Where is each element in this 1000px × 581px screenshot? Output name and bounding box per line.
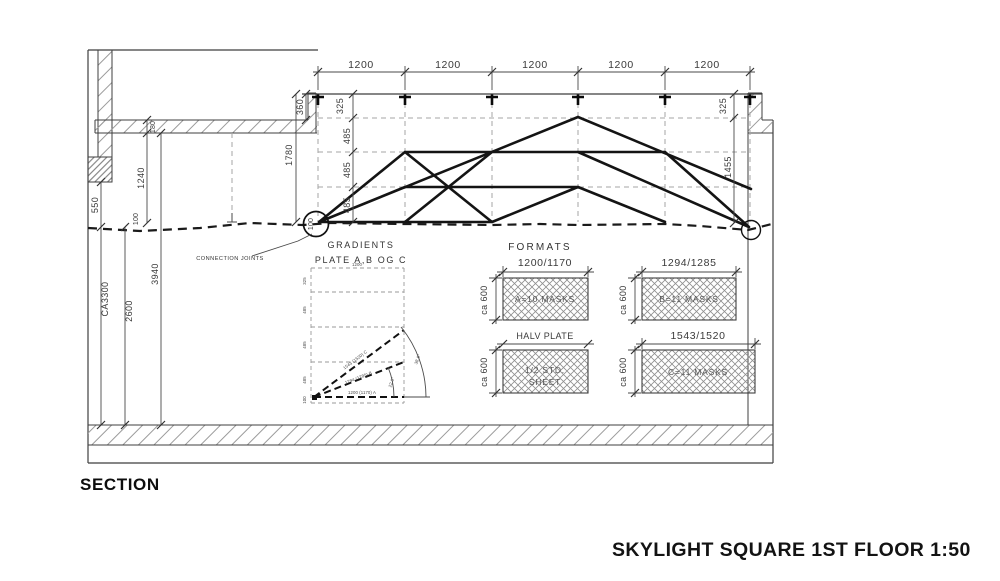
panel-half-label-line1: 1/2 STD. bbox=[525, 365, 565, 375]
format-panel-half: HALV PLATE ca 600 1/2 STD. SHEET bbox=[479, 331, 594, 397]
folded-plate-lines bbox=[319, 117, 751, 227]
dim-1455: 1455 bbox=[723, 156, 733, 178]
drawing-title: SKYLIGHT SQUARE 1ST FLOOR 1:50 bbox=[612, 539, 971, 561]
ceiling-slab-left bbox=[95, 120, 317, 133]
gradients-detail: GRADIENTS PLATE A,B OG C 1200 325 485 48… bbox=[302, 240, 430, 404]
gradient-line-a-label: 1200 (1170) A bbox=[348, 390, 376, 395]
bay-dim-4: 1200 bbox=[608, 59, 634, 71]
bay-dim-5: 1200 bbox=[694, 59, 720, 71]
dim-180: 180 bbox=[150, 121, 157, 133]
gradient-origin bbox=[312, 395, 317, 400]
dim-ca3300: CA3300 bbox=[100, 282, 110, 317]
dim-550: 550 bbox=[90, 197, 100, 213]
level-dim-485c: 485 bbox=[342, 197, 352, 213]
drawing-sheet: 100 CONNECTION JOINTS 1200 1200 1200 120… bbox=[0, 0, 1000, 581]
gradient-line-b-label: 1294 (1285) B bbox=[344, 370, 372, 385]
gradients-title: GRADIENTS bbox=[328, 240, 395, 250]
grid-anchor-mark bbox=[227, 213, 237, 222]
level-dim-485b: 485 bbox=[342, 162, 352, 178]
formats: FORMATS 1200/1170 ca 600 A=10 MASKS 1294… bbox=[479, 242, 761, 397]
joint-leader-line bbox=[252, 234, 312, 256]
panel-a-label: A=10 MASKS bbox=[515, 294, 575, 304]
dims-level-chain-left: 325 485 485 485 1780 360 bbox=[284, 90, 357, 226]
node-offset-dim: 100 bbox=[308, 218, 315, 230]
panel-b-label: B=11 MASKS bbox=[659, 294, 719, 304]
panel-half-side-dim: ca 600 bbox=[479, 357, 489, 386]
gradients-tick-1: 325 bbox=[302, 277, 307, 285]
dim-2600: 2600 bbox=[124, 300, 134, 322]
dims-level-chain-right: 325 1455 bbox=[718, 90, 738, 227]
dim-100: 100 bbox=[133, 213, 140, 225]
level-dim-325: 325 bbox=[335, 98, 345, 114]
angle-inner-label: 22.0° bbox=[387, 376, 395, 388]
gradients-tick-2: 485 bbox=[302, 306, 307, 314]
dim-1240: 1240 bbox=[136, 167, 146, 189]
glass-plane bbox=[302, 94, 762, 105]
dims-top: 1200 1200 1200 1200 1200 bbox=[313, 59, 755, 90]
panel-c-dim: 1543/1520 bbox=[670, 330, 725, 342]
bay-dim-1: 1200 bbox=[348, 59, 374, 71]
panel-b-dim: 1294/1285 bbox=[661, 257, 716, 269]
section-drawing: 100 CONNECTION JOINTS 1200 1200 1200 120… bbox=[0, 0, 1000, 581]
left-wall-hatch bbox=[98, 50, 112, 157]
ceiling-slab-right bbox=[748, 120, 773, 133]
dim-3940: 3940 bbox=[150, 263, 160, 285]
bay-dim-3: 1200 bbox=[522, 59, 548, 71]
gradients-tick-5: 100 bbox=[302, 396, 307, 404]
section-title: SECTION bbox=[80, 475, 160, 494]
gradients-top-dim: 1200 bbox=[352, 262, 362, 267]
format-panel-b: 1294/1285 ca 600 B=11 MASKS bbox=[618, 257, 742, 324]
level-dim-325-right: 325 bbox=[718, 98, 728, 114]
panel-half-label-line2: SHEET bbox=[529, 377, 561, 387]
dim-1780: 1780 bbox=[284, 144, 294, 166]
gradients-tick-3: 485 bbox=[302, 341, 307, 349]
formats-title: FORMATS bbox=[508, 242, 572, 253]
format-panel-a: 1200/1170 ca 600 A=10 MASKS bbox=[479, 257, 594, 324]
gradients-tick-4: 485 bbox=[302, 376, 307, 384]
panel-a-side-dim: ca 600 bbox=[479, 285, 489, 314]
floor-slab bbox=[88, 425, 773, 445]
panel-half-dim: HALV PLATE bbox=[516, 331, 573, 341]
wall-insulation-block bbox=[88, 157, 112, 182]
panel-c-side-dim: ca 600 bbox=[618, 357, 628, 386]
connection-joints-label: CONNECTION JOINTS bbox=[196, 256, 264, 262]
bay-dim-2: 1200 bbox=[435, 59, 461, 71]
dim-360: 360 bbox=[295, 99, 305, 115]
panel-b-side-dim: ca 600 bbox=[618, 285, 628, 314]
level-dim-485a: 485 bbox=[342, 128, 352, 144]
panel-a-dim: 1200/1170 bbox=[518, 257, 572, 269]
connection-joint-line: 100 CONNECTION JOINTS bbox=[88, 212, 772, 263]
beam-connector-icons bbox=[312, 95, 756, 106]
format-panel-c: 1543/1520 ca 600 C=11 MASKS bbox=[618, 330, 761, 397]
panel-c-label: C=11 MASKS bbox=[668, 367, 728, 377]
